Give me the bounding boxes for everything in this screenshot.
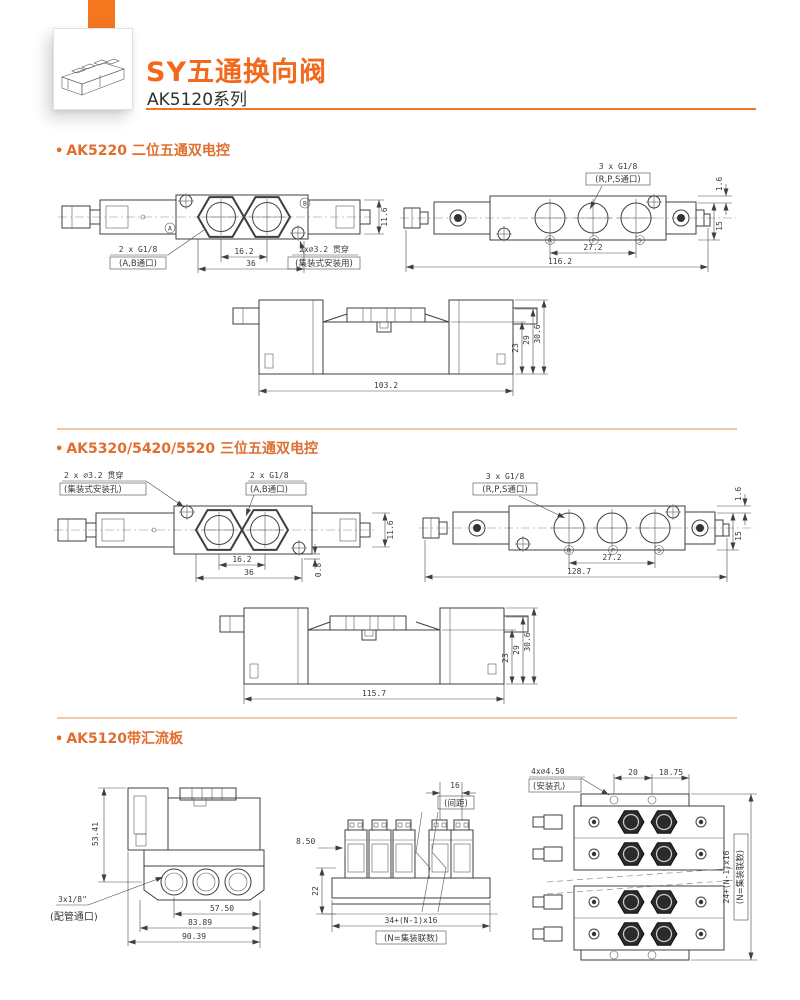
dim-label: 16.2 (234, 247, 253, 256)
dim-label: 18.75 (659, 768, 683, 777)
page-subtitle: AK5120系列 (147, 85, 247, 110)
leader-label: 3x1/8" (58, 895, 87, 904)
s3-manifold-side-geometry (128, 788, 264, 900)
leader-label: 2 x G1/8 (250, 471, 289, 480)
dim-label: 1.6 (734, 487, 743, 502)
section2-title: •AK5320/5420/5520 三位五通双电控 (55, 438, 318, 458)
dim-label: 27.2 (602, 553, 621, 562)
s1-side-dimensions: 103.2 23 29 30.6 (259, 300, 548, 396)
s2-top-view-drawing: 2 x ∅3.2 贯穿 (集装式安装孔) 2 x G1/8 (A,B通口) 16… (54, 466, 396, 584)
s3-manifold-side-drawing: 53.41 3x1/8" (配管通口) 57.50 83.89 90.39 (44, 770, 286, 954)
dim-label: 8.50 (296, 837, 315, 846)
s2-bottom-view-drawing: R P S 3 x G1/8 (R,P,S通口) 27.2 128.7 1.6 … (419, 466, 755, 586)
dim-label: 29 (522, 335, 531, 345)
dim-label: (间距) (444, 799, 468, 809)
s1-bottom-view-drawing: R P S 3 x G1/8 (R,P,S通口) 27.2 116.2 1.6 … (400, 156, 736, 276)
leader-label: (R,P,S通口) (482, 484, 527, 495)
s2-side-view-drawing: 115.7 23 29 30.6 (212, 586, 544, 706)
leader-label: (集装式安装用) (295, 258, 353, 269)
header-rule (146, 108, 756, 110)
dim-label: 24+(N-1)x16 (722, 850, 731, 903)
dim-label: 34+(N-1)x16 (385, 916, 438, 925)
s2-top-dimensions: 2 x ∅3.2 贯穿 (集装式安装孔) 2 x G1/8 (A,B通口) 16… (60, 470, 395, 582)
dim-label: 90.39 (182, 932, 206, 941)
section3-title: •AK5120带汇流板 (55, 728, 183, 748)
dim-label: 128.7 (567, 567, 591, 576)
dim-label: 11.6 (386, 520, 395, 539)
leader-label: (R,P,S通口) (595, 174, 640, 185)
s3-manifold-front-drawing: 16 (间距) 8.50 22 34+(N-1)x16 (N=集装联数) (292, 768, 504, 954)
s3-manifold-front-geometry (322, 812, 498, 914)
dim-label: 29 (512, 645, 521, 655)
dim-label: 0.8 (314, 563, 323, 578)
dim-label: 116.2 (548, 257, 572, 266)
dim-label: 53.41 (91, 822, 100, 846)
dim-label: 23 (501, 653, 510, 663)
s3-manifold-top-geometry (533, 794, 737, 960)
s1-side-view-geometry (233, 300, 537, 374)
dim-label: 57.50 (210, 904, 234, 913)
leader-label: (配管通口) (50, 910, 98, 923)
leader-label: (安装孔) (533, 781, 565, 792)
dim-label: 22 (311, 886, 320, 896)
dim-label: 20 (628, 768, 638, 777)
dim-label: 36 (244, 568, 254, 577)
dim-label: (N=集装联数) (735, 850, 746, 904)
dim-label: 23 (511, 343, 520, 353)
dim-label: 1.6 (715, 177, 724, 192)
s1-top-view-drawing: A B 16.2 36 2 x G1/8 (A,B通口) 2x∅3.2 贯穿 (… (58, 166, 388, 276)
leader-label: 2 x G1/8 (119, 245, 158, 254)
valve-thumbnail-image (54, 29, 132, 109)
port-label-s: S (657, 547, 661, 555)
bullet-icon: • (55, 442, 63, 457)
dim-label: 16.2 (232, 555, 251, 564)
dim-label: 15 (734, 531, 743, 541)
s2-bottom-view-geometry (419, 504, 755, 555)
datasheet-page: SY五通换向阀 AK5120系列 •AK5220 二位五通双电控 A B (0, 0, 800, 1000)
s1-top-view-geometry (58, 193, 370, 241)
dim-label: 16 (450, 781, 460, 790)
leader-label: (A,B通口) (250, 484, 288, 495)
port-label-a: A (168, 225, 172, 233)
dim-label: (N=集装联数) (384, 933, 438, 944)
leader-label: 3 x G1/8 (486, 472, 525, 481)
section3-divider (57, 717, 737, 719)
bullet-icon: • (55, 732, 63, 747)
s3-manifold-side-dimensions: 53.41 3x1/8" (配管通口) 57.50 83.89 90.39 (50, 788, 260, 948)
leader-label: 2x∅3.2 贯穿 (299, 244, 349, 254)
leader-label: (集装式安装孔) (64, 484, 122, 495)
product-thumbnail-card (53, 28, 133, 110)
dim-label: 36 (246, 259, 256, 268)
s2-side-view-geometry (220, 608, 528, 684)
s2-top-view-geometry (54, 504, 374, 556)
leader-label: 3 x G1/8 (599, 162, 638, 171)
leader-label: 2 x ∅3.2 贯穿 (64, 470, 123, 480)
section1-title: •AK5220 二位五通双电控 (55, 140, 230, 160)
s1-side-view-drawing: 103.2 23 29 30.6 (225, 276, 550, 402)
dim-label: 15 (715, 221, 724, 231)
section2-divider (57, 428, 737, 430)
s1-bottom-view-geometry (400, 194, 736, 245)
leader-label: 4x∅4.50 (531, 767, 565, 776)
dim-label: 30.6 (523, 632, 532, 651)
dim-label: 115.7 (362, 689, 386, 698)
port-label-b: B (303, 200, 307, 208)
s3-manifold-top-dimensions: 4x∅4.50 (安装孔) 20 18.75 24+(N-1)x16 (N=集装… (529, 767, 757, 960)
port-label-s: S (638, 237, 642, 245)
leader-label: (A,B通口) (119, 258, 157, 269)
s1-top-dimensions: 16.2 36 2 x G1/8 (A,B通口) 2x∅3.2 贯穿 (集装式安… (110, 200, 389, 273)
page-title: SY五通换向阀 (146, 50, 327, 89)
bullet-icon: • (55, 144, 63, 159)
dim-label: 11.6 (380, 207, 389, 226)
dim-label: 27.2 (583, 243, 602, 252)
s3-manifold-top-drawing: 4x∅4.50 (安装孔) 20 18.75 24+(N-1)x16 (N=集装… (519, 764, 763, 962)
dim-label: 83.89 (188, 918, 212, 927)
dim-label: 103.2 (374, 381, 398, 390)
dim-label: 30.6 (533, 324, 542, 343)
s2-side-dimensions: 115.7 23 29 30.6 (244, 608, 538, 704)
page-tab-marker (88, 0, 115, 30)
